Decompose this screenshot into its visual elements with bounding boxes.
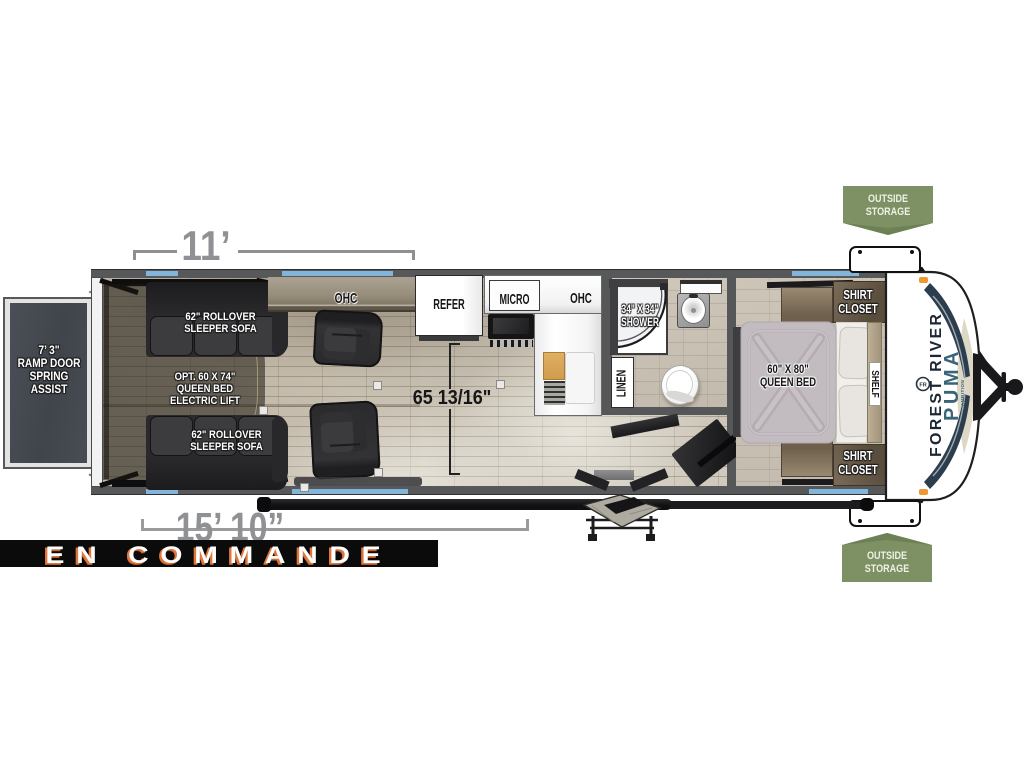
svg-text:FR: FR — [919, 383, 926, 389]
svg-text:AMBITION: AMBITION — [960, 380, 965, 406]
